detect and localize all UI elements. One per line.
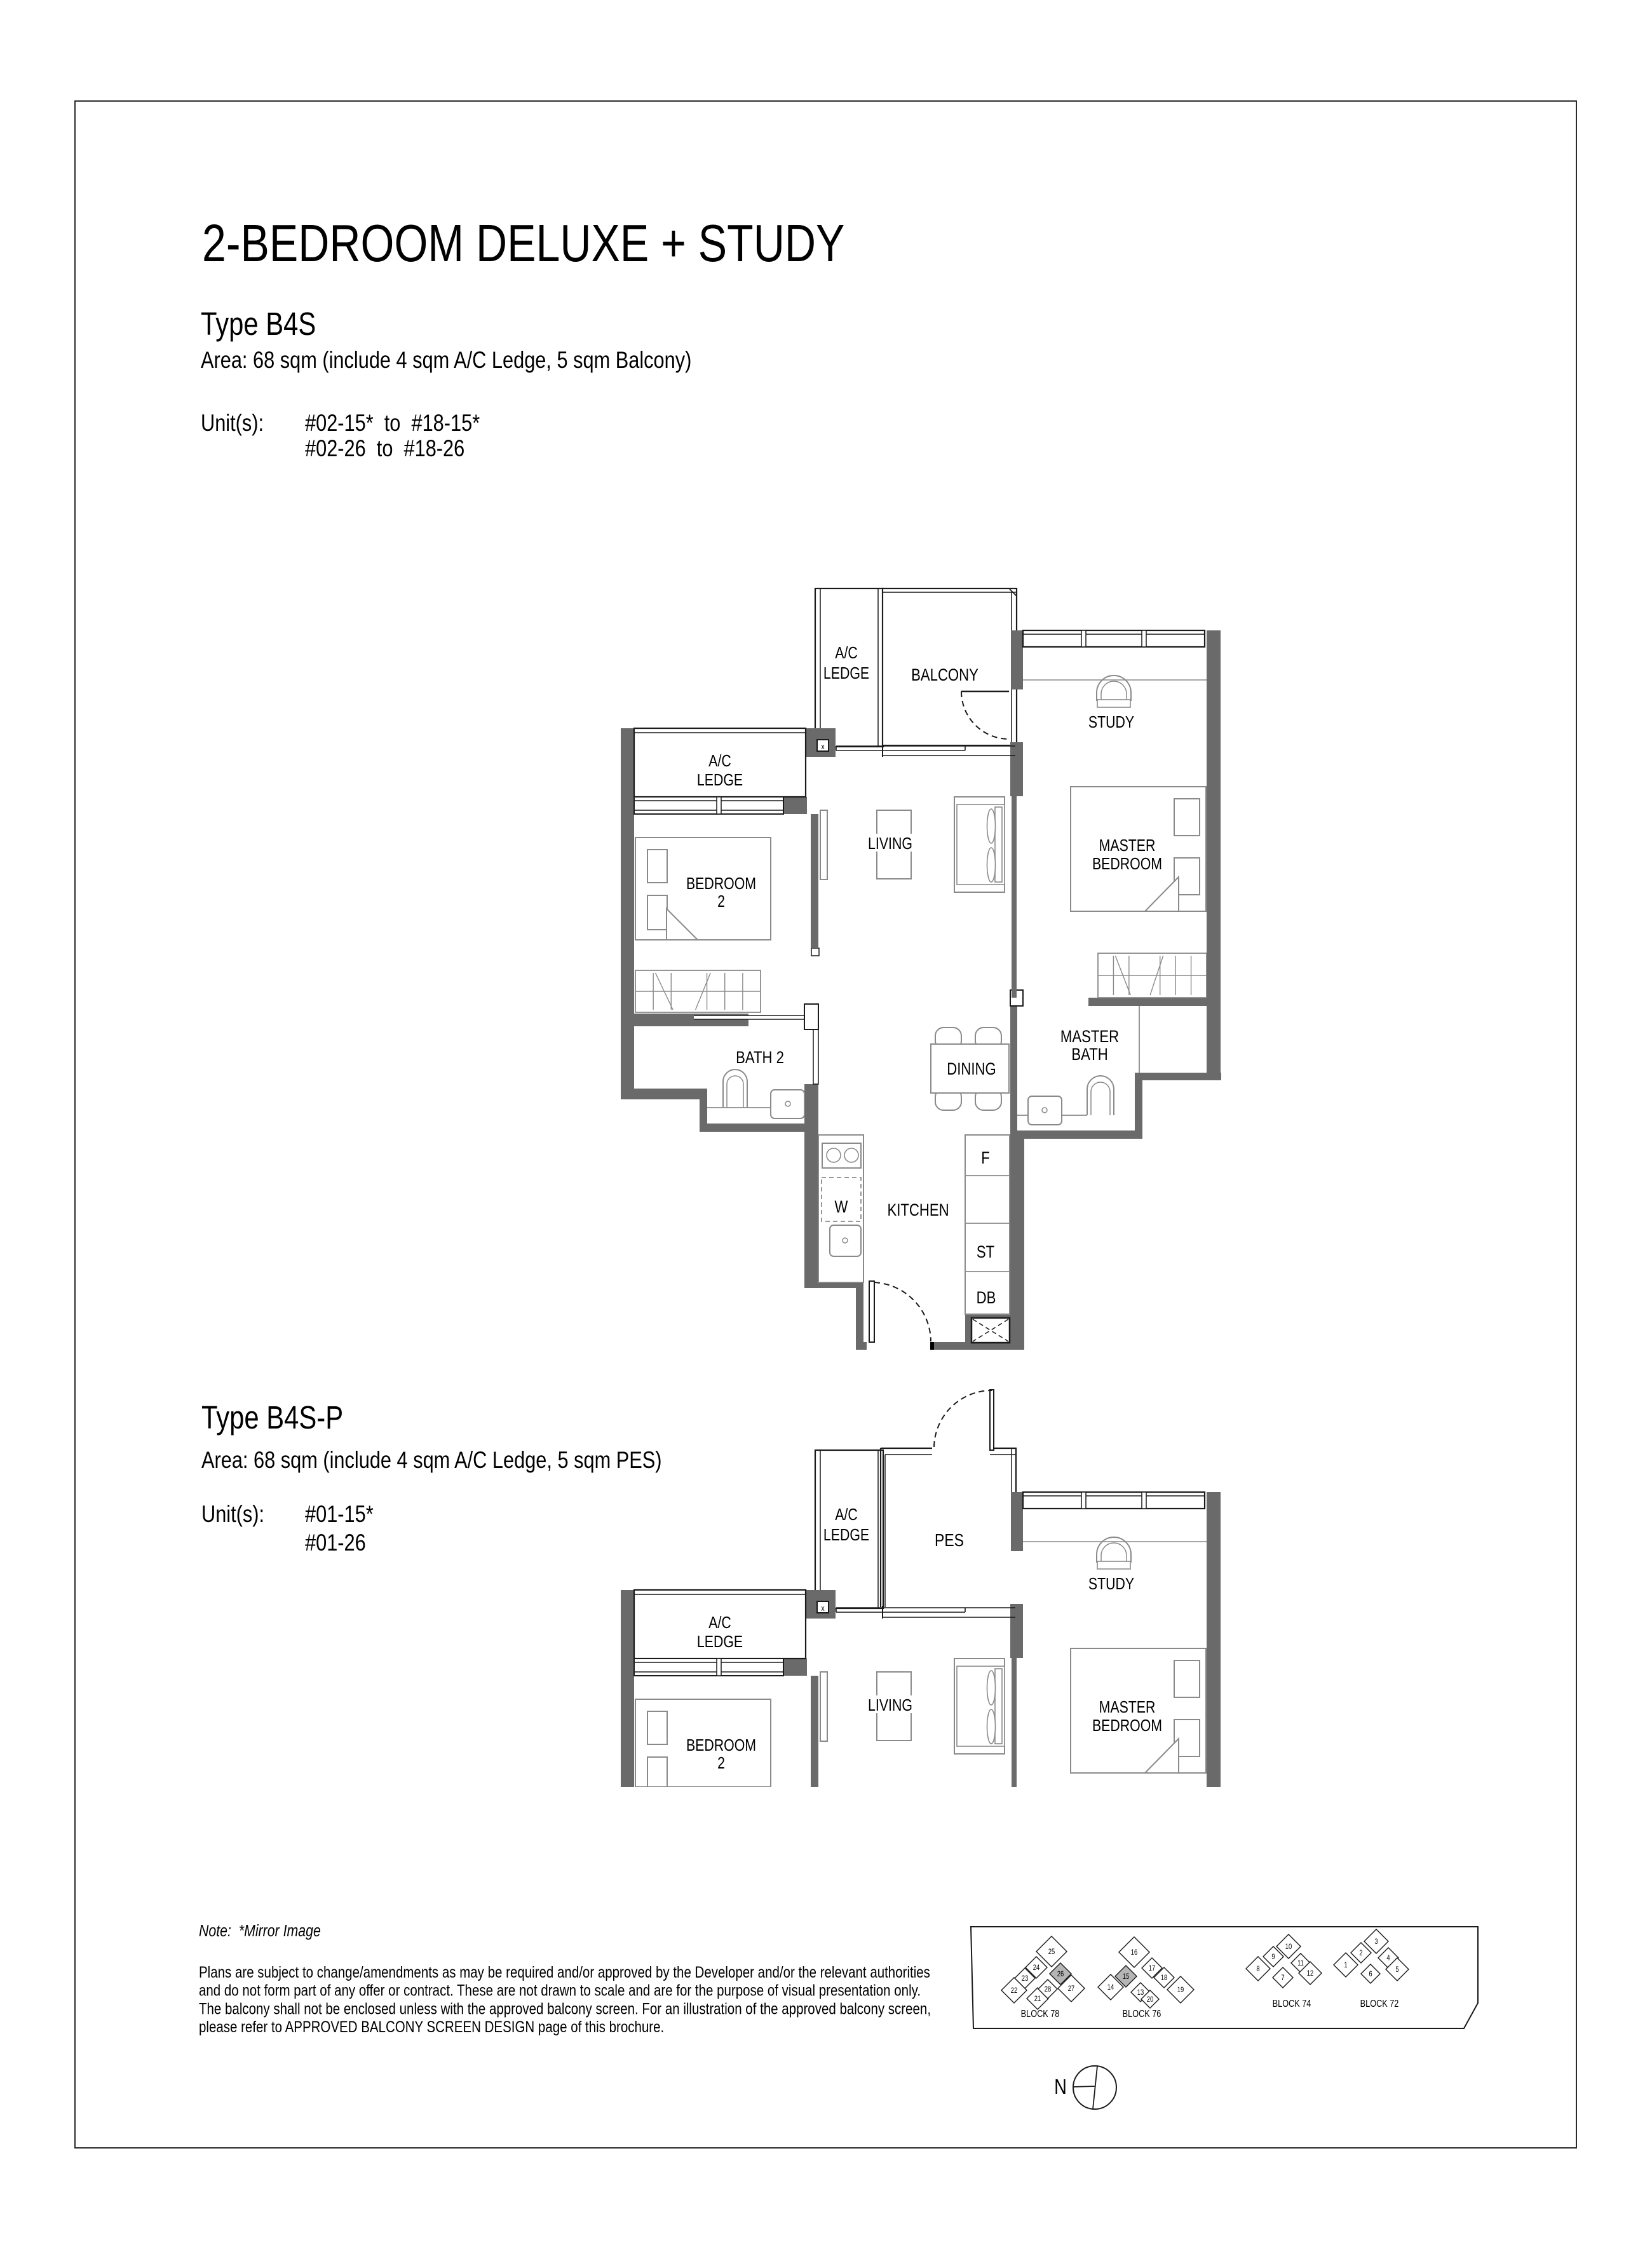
svg-text:6: 6 (1369, 1970, 1372, 1978)
svg-text:14: 14 (1107, 1983, 1114, 1992)
svg-text:STUDY: STUDY (1088, 1575, 1134, 1594)
svg-text:A/C: A/C (708, 752, 731, 771)
svg-text:BLOCK 76: BLOCK 76 (1123, 2009, 1161, 2020)
svg-text:18: 18 (1161, 1974, 1168, 1982)
svg-text:10: 10 (1285, 1943, 1292, 1951)
svg-text:17: 17 (1149, 1964, 1156, 1972)
svg-text:21: 21 (1034, 1995, 1041, 2003)
svg-text:7: 7 (1281, 1974, 1284, 1982)
svg-text:LEDGE: LEDGE (823, 1526, 869, 1545)
svg-text:LEDGE: LEDGE (697, 1633, 743, 1652)
svg-text:Type B4S: Type B4S (201, 306, 316, 342)
svg-text:and do not form part of any of: and do not form part of any offer or con… (199, 1981, 921, 1999)
svg-text:Type B4S-P: Type B4S-P (201, 1399, 343, 1436)
svg-text:#02-15* to #18-15*: #02-15* to #18-15* (305, 410, 480, 437)
svg-text:x: x (821, 1603, 824, 1613)
svg-text:ST: ST (977, 1243, 994, 1262)
svg-text:BATH: BATH (1071, 1045, 1107, 1064)
svg-text:BATH 2: BATH 2 (736, 1049, 784, 1068)
svg-text:9: 9 (1271, 1953, 1275, 1961)
svg-text:x: x (821, 742, 824, 751)
svg-text:4: 4 (1386, 1954, 1390, 1962)
svg-text:W: W (835, 1198, 849, 1217)
svg-text:BEDROOM: BEDROOM (1092, 855, 1162, 874)
svg-text:3: 3 (1374, 1938, 1378, 1946)
svg-text:N: N (1054, 2076, 1067, 2099)
svg-text:15: 15 (1123, 1972, 1130, 1981)
svg-text:KITCHEN: KITCHEN (887, 1201, 949, 1220)
svg-text:24: 24 (1033, 1964, 1040, 1972)
svg-text:16: 16 (1131, 1948, 1138, 1957)
svg-text:20: 20 (1147, 1995, 1154, 2004)
svg-text:Note: *Mirror Image: Note: *Mirror Image (199, 1922, 321, 1941)
svg-text:DINING: DINING (947, 1060, 996, 1079)
svg-text:PES: PES (935, 1531, 964, 1551)
svg-text:Plans are subject to change/am: Plans are subject to change/amendments a… (199, 1963, 930, 1981)
svg-text:13: 13 (1137, 1988, 1144, 1997)
svg-text:MASTER: MASTER (1099, 1698, 1156, 1717)
svg-text:26: 26 (1057, 1970, 1064, 1978)
svg-text:12: 12 (1307, 1969, 1314, 1978)
svg-text:#01-26: #01-26 (305, 1530, 366, 1556)
svg-text:27: 27 (1068, 1985, 1075, 1993)
svg-text:25: 25 (1048, 1948, 1055, 1956)
svg-text:#02-26 to #18-26: #02-26 to #18-26 (305, 435, 464, 462)
svg-text:1: 1 (1344, 1961, 1347, 1969)
svg-text:LIVING: LIVING (868, 1696, 912, 1715)
svg-text:BLOCK 78: BLOCK 78 (1021, 2009, 1060, 2020)
svg-text:23: 23 (1022, 1974, 1029, 1983)
svg-text:#01-15*: #01-15* (305, 1501, 374, 1528)
svg-text:The balcony shall not be enclo: The balcony shall not be enclosed unless… (199, 1999, 931, 2017)
svg-text:Unit(s):: Unit(s): (201, 410, 264, 437)
svg-text:22: 22 (1011, 1986, 1018, 1995)
svg-text:Area: 68 sqm (include 4 sqm A/: Area: 68 sqm (include 4 sqm A/C Ledge, 5… (201, 1447, 661, 1474)
svg-text:BEDROOM: BEDROOM (1092, 1716, 1162, 1735)
svg-text:please refer to APPROVED BALCO: please refer to APPROVED BALCONY SCREEN … (199, 2018, 664, 2035)
svg-text:2-BEDROOM DELUXE + STUDY: 2-BEDROOM DELUXE + STUDY (202, 214, 844, 273)
svg-text:BLOCK 72: BLOCK 72 (1360, 1999, 1399, 2009)
svg-text:BEDROOM: BEDROOM (686, 1736, 756, 1755)
svg-text:2: 2 (1359, 1949, 1362, 1957)
svg-text:A/C: A/C (708, 1613, 731, 1633)
svg-text:5: 5 (1395, 1965, 1398, 1974)
svg-text:8: 8 (1256, 1965, 1259, 1973)
svg-text:A/C: A/C (835, 1505, 858, 1524)
svg-text:F: F (981, 1149, 990, 1168)
svg-text:MASTER: MASTER (1099, 836, 1156, 855)
svg-text:19: 19 (1177, 1986, 1184, 1994)
svg-text:LIVING: LIVING (868, 834, 912, 853)
svg-text:A/C: A/C (835, 644, 858, 663)
svg-text:MASTER: MASTER (1060, 1028, 1119, 1047)
svg-text:STUDY: STUDY (1088, 713, 1134, 732)
svg-text:28: 28 (1045, 1985, 1052, 1993)
svg-text:LEDGE: LEDGE (697, 771, 743, 790)
svg-text:BALCONY: BALCONY (911, 666, 978, 685)
svg-text:DB: DB (977, 1289, 996, 1308)
svg-text:2: 2 (717, 892, 725, 911)
svg-text:LEDGE: LEDGE (823, 664, 869, 683)
svg-text:2: 2 (717, 1754, 725, 1773)
svg-text:BEDROOM: BEDROOM (686, 874, 756, 893)
svg-text:11: 11 (1297, 1959, 1304, 1967)
svg-text:Unit(s):: Unit(s): (201, 1501, 264, 1528)
svg-text:Area: 68 sqm (include 4 sqm A/: Area: 68 sqm (include 4 sqm A/C Ledge, 5… (201, 347, 691, 374)
svg-text:BLOCK 74: BLOCK 74 (1273, 1999, 1311, 2009)
